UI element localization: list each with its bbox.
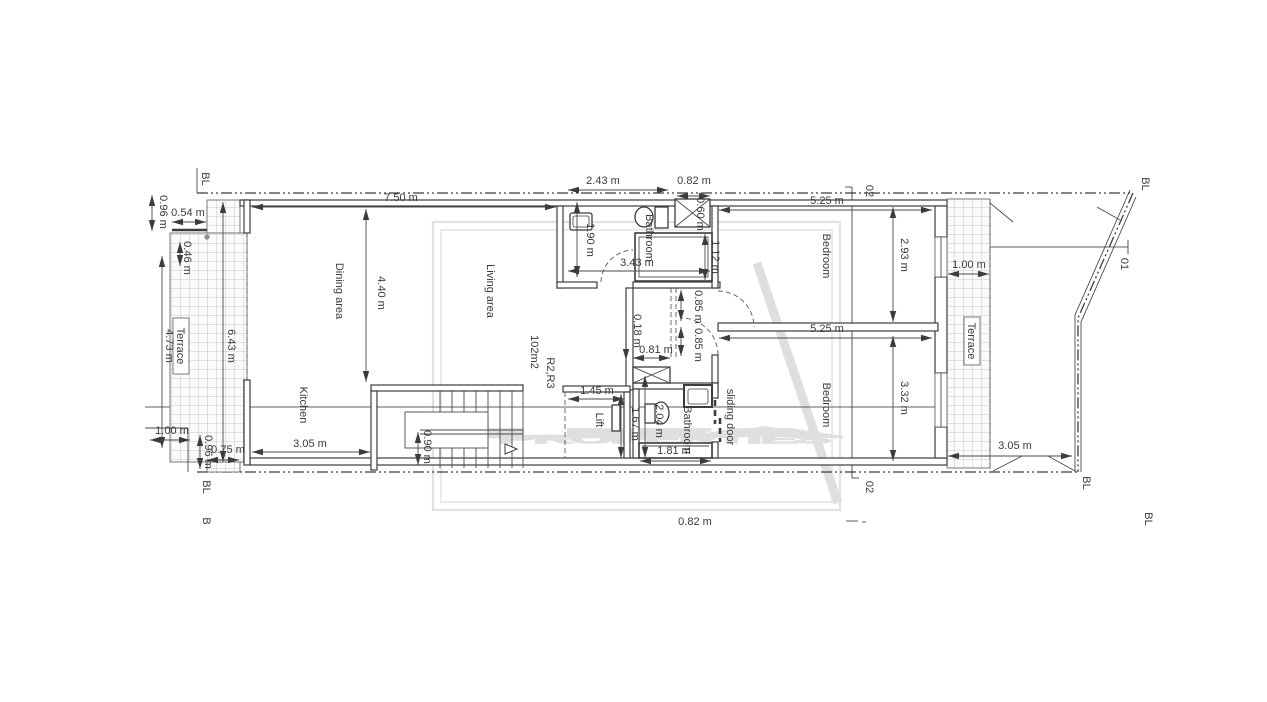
dim-5-25-top: 5.25 m [810,195,844,207]
dim-0-18: 0.18 m [631,314,643,348]
wall-bathroom2-right-b [712,442,718,458]
dim-1-45: 1.45 m [580,385,614,397]
dim-1-67: 1.67 m [629,407,641,441]
section-label-b: B [200,517,212,524]
dim-0-82-bottom: 0.82 m [678,516,712,528]
room-bedroom-top: Bedroom [820,234,832,279]
dim-1-00-right: 1.00 m [952,259,986,271]
boundary-label-bl-bottom-left: BL [200,480,212,493]
boundary-label-bl-far-bottom-right: BL [1142,512,1154,525]
terrace-post-dot [204,234,209,239]
dim-0-96-bottom: 0.96 m [202,435,214,469]
dim-7-50: 7.50 m [384,192,418,204]
label-area: 102m2 [528,335,540,369]
door-arc-corridor-upper [718,291,754,327]
dim-3-05-left: 3.05 m [293,438,327,450]
wall-bathroom-bottom-b [633,282,720,288]
dim-6-43: 6.43 m [225,329,237,363]
room-bedroom-bottom: Bedroom [820,383,832,428]
terrace-right: Terrace [947,199,990,468]
room-bathroom-bottom: Bathroom [681,406,693,454]
boundary-label-bl-top-right: BL [1139,177,1151,190]
boundary-label-bl-top-left: BL [199,172,211,185]
wall-stair-top [371,385,523,391]
label-sliding-door: sliding door [724,389,736,446]
wall-bottom [250,458,947,465]
terrace-right-label: Terrace [965,323,977,360]
wall-left-kitchen [244,380,250,465]
shaft-corridor [633,367,670,383]
dim-1-12: 1.12 m [709,240,721,274]
wall-corridor-right [712,355,718,383]
section-label-02-top: 02 [863,185,875,197]
dim-3-05-right: 3.05 m [998,440,1032,452]
dim-2-93: 2.93 m [898,238,910,272]
dim-3-32: 3.32 m [898,381,910,415]
dim-0-96-top: 0.96 m [157,195,169,229]
dim-0-54: 0.54 m [171,207,205,219]
label-unit-refs: R2,R3 [544,357,556,388]
dim-0-75: 0.75 m [211,444,245,456]
dim-1-00-left: 1.00 m [155,425,189,437]
room-bathroom-top: Bathroom [643,214,655,262]
dim-2-43: 2.43 m [586,175,620,187]
dim-0-60: 0.60 m [694,197,706,231]
dim-0-85-lower: 0.85 m [692,328,704,362]
dim-5-25-bottom: 5.25 m [810,323,844,335]
section-label-02-bottom: 02 [863,481,875,493]
dim-0-82-top: 0.82 m [677,175,711,187]
toilet-top-tank [655,207,668,228]
dim-0-85-upper: 0.85 m [692,290,704,324]
wall-bathroom-bottom-a [557,282,597,288]
dim-1-90: 1.90 m [584,223,596,257]
dim-0-81: 0.81 m [639,344,673,356]
dim-0-46: 0.46 m [181,241,193,275]
room-dining: Dining area [333,263,345,320]
wall-stair-left [371,391,377,470]
dim-4-40: 4.40 m [375,276,387,310]
wall-left-upper [244,200,250,233]
floor-plan-drawing: LEA PROPERTIES BL BL BL BL BL B 02 02 01 [0,0,1267,702]
wall-right-lower [935,427,947,458]
dim-4-73: 4.73 m [163,329,175,363]
window-bedroom-bottom [935,373,947,427]
window-bedroom-top [935,237,947,277]
dim-2-04: 2.04 m [653,404,665,438]
dim-0-90: 0.90 m [421,430,433,464]
boundary-label-bl-bottom-right: BL [1080,476,1092,489]
lift-door [612,405,620,431]
room-lift: Lift [593,413,605,428]
level-label-01: 01 [1118,258,1130,270]
floor-plan-canvas: LEA PROPERTIES BL BL BL BL BL B 02 02 01 [0,0,1267,702]
wall-right-upper [935,206,947,237]
room-kitchen: Kitchen [297,387,309,424]
wall-bathroom-left [557,206,563,288]
room-living: Living area [484,264,496,319]
